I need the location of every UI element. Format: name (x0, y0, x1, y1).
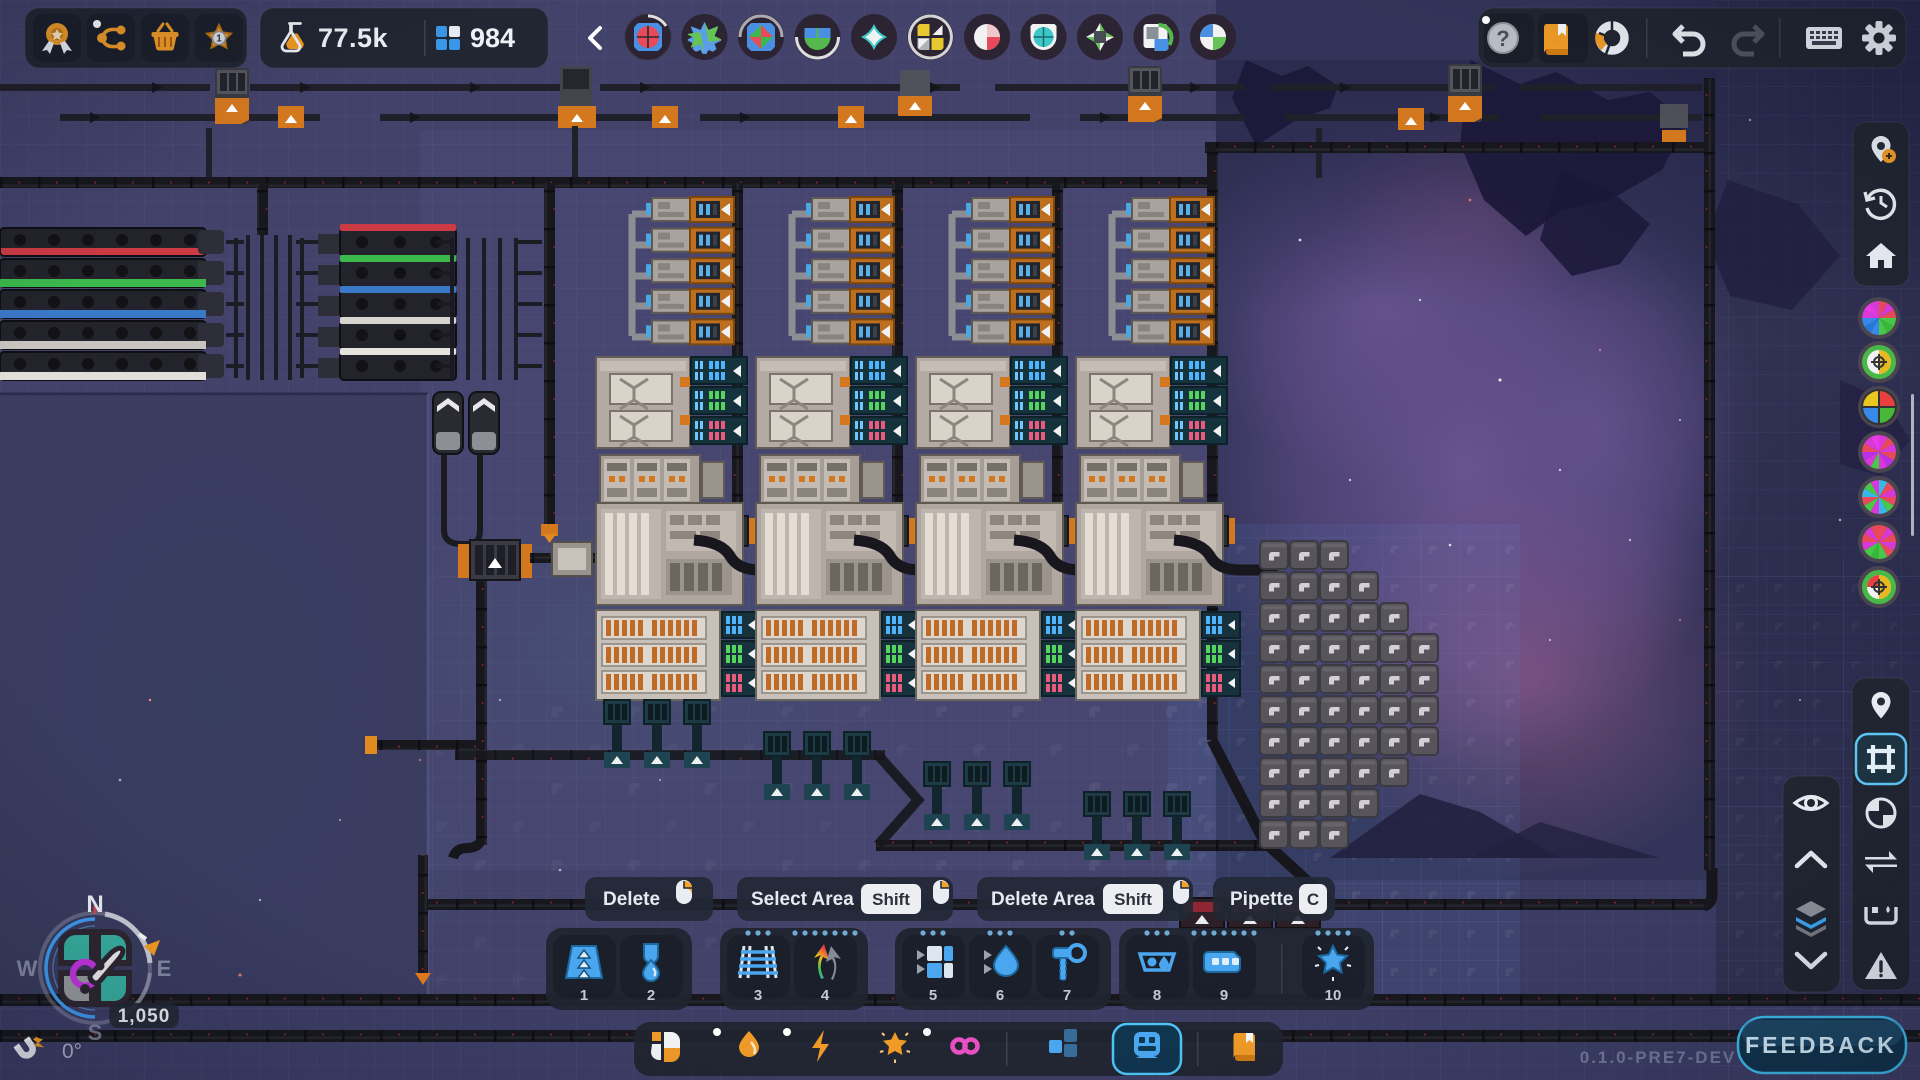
svg-text:984: 984 (470, 23, 515, 53)
svg-text:Select Area: Select Area (751, 889, 854, 910)
svg-text:8: 8 (1153, 987, 1161, 1004)
svg-text:N: N (86, 891, 103, 918)
svg-text:9: 9 (1220, 987, 1228, 1004)
svg-text:7: 7 (1063, 987, 1071, 1004)
svg-text:Pipette: Pipette (1230, 889, 1293, 910)
svg-text:1,050: 1,050 (118, 1006, 171, 1027)
svg-text:2: 2 (647, 987, 655, 1004)
svg-text:Delete Area: Delete Area (991, 889, 1095, 910)
svg-text:3: 3 (754, 987, 762, 1004)
svg-text:C: C (1307, 890, 1319, 909)
svg-text:0.1.0-PRE7-DEV: 0.1.0-PRE7-DEV (1580, 1048, 1737, 1067)
svg-text:1: 1 (216, 33, 222, 44)
svg-text:6: 6 (996, 987, 1004, 1004)
svg-text:E: E (157, 956, 172, 981)
svg-text:5: 5 (929, 987, 937, 1004)
svg-text:1: 1 (580, 987, 588, 1004)
svg-text:0°: 0° (62, 1040, 82, 1063)
svg-text:Shift: Shift (1114, 890, 1152, 909)
svg-text:S: S (88, 1020, 103, 1045)
svg-text:4: 4 (821, 987, 830, 1004)
svg-text:10: 10 (1325, 987, 1342, 1004)
svg-text:FEEDBACK: FEEDBACK (1745, 1032, 1897, 1058)
svg-text:W: W (17, 956, 38, 981)
svg-text:77.5k: 77.5k (318, 23, 389, 53)
svg-text:?: ? (1496, 26, 1509, 51)
svg-text:Shift: Shift (872, 890, 910, 909)
svg-text:Delete: Delete (603, 889, 660, 910)
